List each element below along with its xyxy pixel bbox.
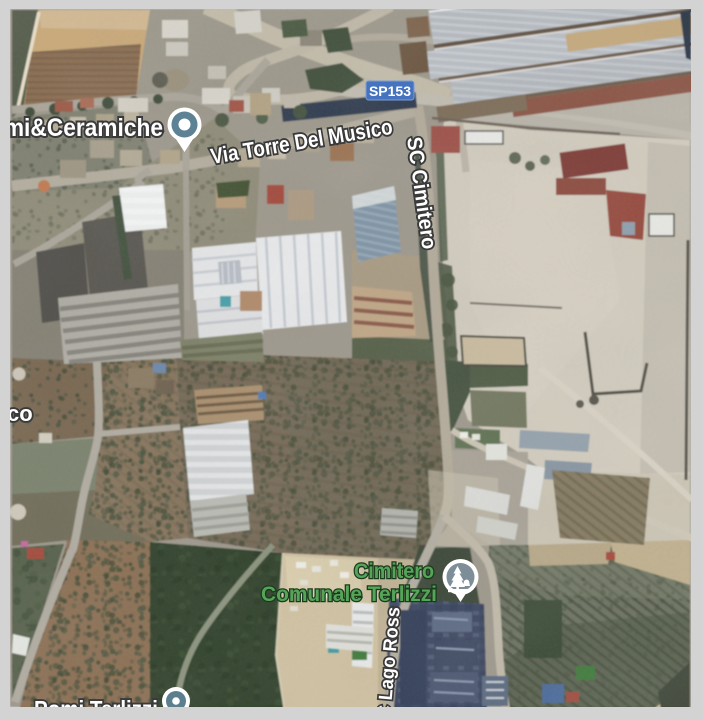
svg-text:SP153: SP153 — [369, 83, 411, 99]
svg-text:co: co — [7, 401, 33, 426]
svg-text:rmi&Ceramiche: rmi&Ceramiche — [0, 114, 163, 142]
svg-text:Cimitero: Cimitero — [354, 560, 434, 583]
svg-text:Comunale Terlizzi: Comunale Terlizzi — [261, 583, 437, 606]
